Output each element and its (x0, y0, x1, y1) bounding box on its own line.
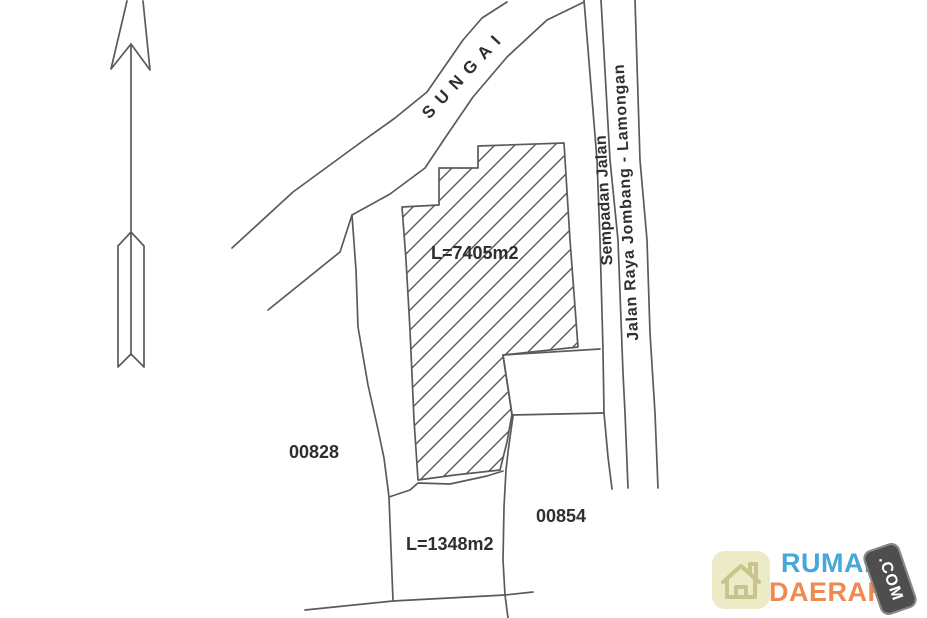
bottom-boundary-line (305, 592, 533, 610)
south-parcel-area-label: L=1348m2 (406, 534, 494, 554)
rumahdaerah-logo: RUMAH DAERAH .COM (705, 545, 927, 618)
main-parcel-hatched-area (402, 143, 578, 480)
main-parcel-area-label: L=7405m2 (431, 243, 519, 263)
house-icon (712, 551, 770, 609)
west-boundary-line (352, 215, 389, 497)
river-label: SUNGAI (418, 26, 510, 122)
west-parcel-number-label: 00828 (289, 442, 339, 462)
com-badge-label: .COM (874, 554, 906, 603)
site-plan-drawing: SUNGAI Sempadan Jalan Jalan Raya Jombang… (0, 0, 927, 618)
road-setback-label: Sempadan Jalan (593, 135, 617, 266)
roadside-parcel-outline (503, 349, 604, 415)
site-plan-canvas: SUNGAI Sempadan Jalan Jalan Raya Jombang… (0, 0, 927, 618)
east-parcel-number-label: 00854 (536, 506, 586, 526)
road-edge-right-line (635, 0, 658, 488)
